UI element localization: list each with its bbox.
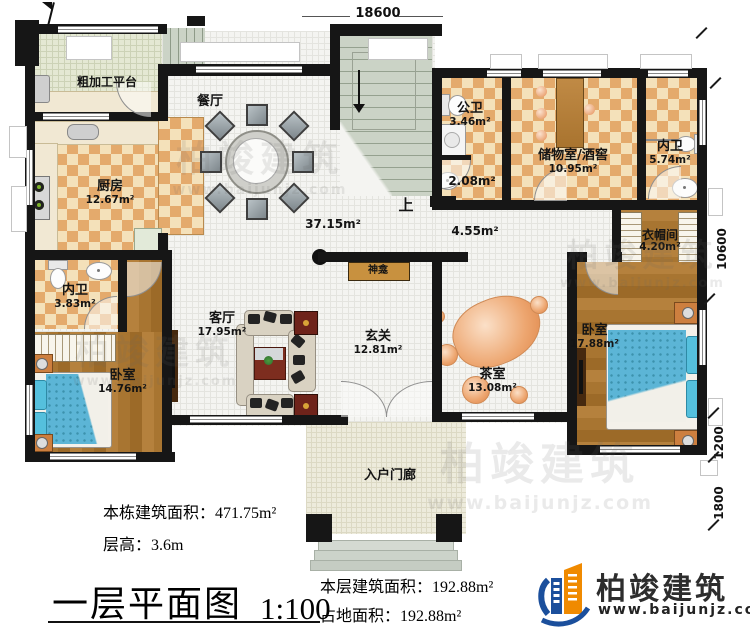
room-label-kitchen: 厨房 12.67m²	[70, 180, 150, 206]
wall	[567, 252, 577, 455]
window-sill	[11, 186, 27, 232]
dimension-right-upper: 10600	[715, 219, 729, 279]
sofa-cushion	[250, 398, 262, 408]
window-sill	[538, 54, 608, 69]
wall	[25, 250, 172, 260]
wall	[330, 24, 340, 130]
tea-stone	[530, 296, 548, 314]
dimension-tick	[709, 77, 721, 89]
room-label-bedroom-right: 卧室 17.88m²	[557, 324, 632, 350]
wall	[430, 196, 456, 207]
window-sill	[640, 54, 692, 69]
room-label-public-bath: 公卫 3.46m²	[438, 102, 502, 128]
room-area-dining: 37.15m²	[298, 218, 368, 231]
window	[196, 66, 302, 73]
washing-machine-drum	[444, 132, 460, 148]
dimension-tick	[695, 27, 707, 39]
page-blank-cover-2	[466, 423, 567, 453]
plant	[264, 356, 273, 365]
room-label-bedroom-left: 卧室 14.76m²	[85, 369, 160, 395]
room-area-wash: 2.08m²	[442, 175, 502, 188]
wall	[118, 260, 127, 332]
room-label-porch: 入户门廊	[335, 469, 445, 484]
room-label-dining: 餐厅	[180, 95, 240, 110]
window-sill	[368, 38, 428, 60]
room-label-bath-left: 内卫 3.83m²	[45, 284, 105, 310]
window-sill	[708, 188, 723, 216]
stairwell-rail	[352, 52, 416, 130]
tv	[579, 360, 583, 394]
wall	[330, 24, 442, 36]
wine-jar	[536, 130, 547, 141]
stove-burner	[34, 182, 44, 192]
stove-burner	[34, 200, 44, 210]
kitchen-serving-counter	[158, 117, 204, 235]
window	[26, 385, 33, 435]
window	[43, 113, 109, 120]
window-sill	[66, 36, 112, 60]
wine-jar	[536, 108, 547, 119]
room-label-living: 客厅 17.95m²	[186, 312, 258, 338]
window	[58, 26, 158, 33]
porch-post	[436, 514, 462, 542]
wall	[318, 252, 468, 262]
kitchen-sink	[67, 124, 99, 140]
window	[699, 100, 706, 145]
room-label-tea: 茶室 13.08m²	[455, 368, 530, 394]
window	[487, 70, 521, 77]
wall	[637, 68, 646, 210]
stair-arrow-head	[353, 104, 365, 113]
wine-jar	[584, 104, 595, 115]
corner-post	[15, 20, 39, 66]
dimension-right-mid: 1200	[712, 419, 726, 467]
room-area-hall: 4.55m²	[440, 225, 510, 238]
sofa-cushion	[280, 314, 292, 324]
wall	[567, 252, 587, 262]
room-label-prep: 粗加工平台	[52, 76, 162, 89]
floor-plan-page: 18600 10600 1200 1800 粗加工平台 厨房 12.67m² 餐…	[0, 0, 750, 636]
sofa-cushion	[281, 398, 293, 408]
stair-arrow-line	[358, 70, 360, 104]
window	[699, 310, 706, 365]
wall	[162, 250, 172, 425]
dining-chair	[246, 104, 268, 126]
wall	[432, 68, 442, 210]
brand-logo-icon	[536, 558, 592, 628]
wall	[502, 68, 511, 210]
sink	[86, 262, 112, 280]
wall	[612, 210, 621, 262]
stat-floor-height: 层高：3.6m	[103, 531, 183, 555]
window	[648, 70, 688, 77]
window	[50, 453, 136, 460]
dining-table-top	[233, 138, 279, 184]
stairwell-cut	[340, 122, 392, 196]
room-label-bath-right: 内卫 5.74m²	[640, 140, 700, 166]
stat-footprint: 占地面积：192.88m²	[320, 602, 461, 626]
brand-url: www.baijunjz.com	[598, 602, 750, 618]
dining-chair	[292, 151, 314, 173]
dining-chair	[200, 151, 222, 173]
plan-title-text: 一层平面图	[52, 575, 242, 627]
sofa-cushion	[293, 355, 305, 365]
window	[190, 416, 282, 423]
room-label-storage: 储物室/酒窖 10.95m²	[508, 149, 638, 175]
dining-chair	[246, 198, 268, 220]
porch-step-3	[310, 560, 462, 571]
brand-logo: 柏竣建筑 www.baijunjz.com	[536, 558, 736, 630]
plan-title: 一层平面图 1:100	[52, 575, 331, 627]
wine-jar	[536, 86, 547, 97]
side-table	[294, 311, 318, 335]
wall	[432, 252, 442, 422]
window	[543, 70, 601, 77]
window-sill	[490, 54, 522, 69]
stat-total-area: 本栋建筑面积：471.75m²	[103, 499, 276, 523]
room-label-cloakroom: 衣帽间 4.20m²	[628, 229, 692, 254]
stair-post	[187, 16, 205, 26]
window-sill	[9, 126, 27, 158]
window	[462, 413, 534, 420]
window-sill	[180, 42, 300, 62]
room-label-foyer: 玄关 12.81m²	[343, 330, 413, 356]
brand-logo-icon-svg	[536, 558, 592, 628]
porch-post	[306, 514, 332, 542]
room-label-shrine: 神龛	[348, 265, 408, 276]
plan-title-underline	[48, 621, 320, 623]
window	[26, 150, 33, 205]
wine-rack	[556, 78, 584, 148]
dimension-top: 18600	[343, 6, 413, 21]
page-blank-cover-1	[172, 426, 306, 456]
window	[600, 446, 680, 453]
stat-floor-area: 本层建筑面积：192.88m²	[320, 573, 493, 597]
north-flag-tip	[42, 2, 52, 10]
stairs-up-label: 上	[392, 197, 420, 214]
wall	[432, 200, 707, 210]
